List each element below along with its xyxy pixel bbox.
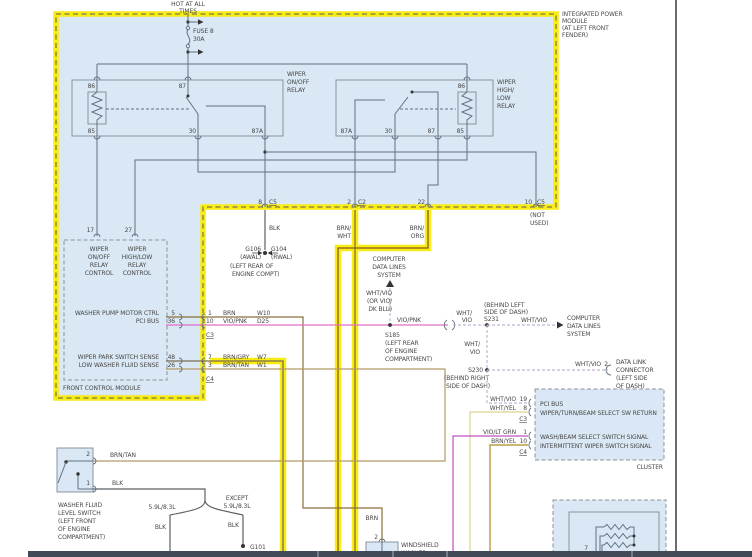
cdl-wire-2: (OR VIO/: [367, 298, 393, 305]
ground-g101: G101: [250, 544, 266, 551]
fcm-pin17: 17: [87, 227, 95, 234]
switch-name-1: WASHER FLUID: [58, 502, 102, 509]
hot-label: HOT AT ALL: [171, 1, 206, 8]
conn-c2-label: C2: [358, 199, 366, 206]
cluster-row-pin: 8: [523, 405, 527, 412]
ground-g106-loc: (AWAL): [240, 254, 261, 261]
cluster-conn-c3: C3: [519, 416, 527, 423]
fcm-highlow-3: RELAY: [128, 262, 147, 269]
wht-vio-right-label: WHT/VIO: [521, 317, 547, 324]
fcm-pin27: 27: [125, 227, 133, 234]
wiring-diagram: HOT AT ALL TIMES FUSE 8 30A INTEGRATED P…: [0, 0, 752, 557]
fcm-row-pin: 36: [168, 318, 176, 325]
pin2-label: 2: [347, 199, 351, 206]
ground-location-1: (LEFT REAR OF: [230, 263, 274, 270]
s185-loc-2: OF ENGINE: [385, 348, 417, 355]
fcm-onoff-2: ON/OFF: [88, 254, 111, 261]
relay2-pin87: 87: [428, 128, 436, 135]
brn-org-label-1: BRN/: [410, 225, 425, 232]
ground-g106: G106: [245, 246, 261, 253]
s231-loc-2: SIDE OF DASH): [484, 309, 528, 316]
relay1-pin85: 85: [88, 128, 96, 135]
dlc-pin: 2: [604, 361, 608, 368]
wht-vio-network: WHT/ VIO (BEHIND LEFT SIDE OF DASH) S231…: [444, 302, 654, 403]
splice-s185: S185: [385, 332, 400, 339]
cluster-row-wire: BRN/YEL: [491, 438, 517, 445]
switch-wire1: BLK: [112, 480, 124, 487]
not-used-2: USED): [530, 220, 548, 227]
relay2-pin85: 85: [457, 128, 465, 135]
relay1-pin30: 30: [189, 128, 197, 135]
switch-name-4: OF ENGINE: [58, 526, 90, 533]
fcm-row-pin: 48: [168, 354, 176, 361]
relay2-pin30: 30: [385, 128, 393, 135]
wht-vio-label-2: VIO: [462, 317, 473, 324]
cdl-right-2: DATA LINES: [567, 323, 601, 330]
fcm-row-circuit: W10: [257, 310, 271, 317]
fcm-onoff-4: CONTROL: [85, 270, 114, 277]
cluster-row-label: WIPER/TURN/BEAM SELECT SW RETURN: [540, 410, 657, 417]
ground-engine: G106 (AWAL) G104 (RWAL) (LEFT REAR OF EN…: [230, 210, 292, 278]
ground-location-2: ENGINE COMPT): [232, 271, 279, 278]
fcm-row-circuit: D25: [257, 318, 269, 325]
cluster-row-label: INTERMITTENT WIPER SWITCH SIGNAL: [540, 443, 652, 450]
s230-loc-1: (BEHIND RIGHT: [444, 375, 489, 382]
pin10-label: 10: [525, 199, 533, 206]
cdl-sys-3: SYSTEM: [377, 272, 400, 279]
not-used-1: (NOT: [530, 212, 545, 219]
ipm-name-1: INTEGRATED POWER: [562, 11, 623, 18]
pump-pin: 2: [374, 534, 378, 541]
cdl-right-3: SYSTEM: [567, 331, 590, 338]
relay1-pin87: 87: [179, 83, 187, 90]
s230-loc-2: SIDE OF DASH): [446, 383, 490, 390]
switch-pin1: 1: [86, 480, 90, 487]
fcm-highlow-1: WIPER: [128, 246, 147, 253]
relay1-pin87a: 87A: [252, 128, 264, 135]
fcm-row-label: WASHER PUMP MOTOR CTRL: [75, 310, 160, 317]
blk-right-label: BLK: [228, 522, 240, 529]
fcm-row-wire: VIO/PNK: [223, 318, 248, 325]
splice-s230: S230: [468, 367, 483, 374]
fcm-onoff-3: RELAY: [90, 262, 109, 269]
fcm-row-pin: 26: [168, 362, 176, 369]
fcm-row-connpin: 1: [208, 310, 212, 317]
cluster-row-wire: WHT/VIO: [490, 396, 516, 403]
pump-name-1: WINDSHIELD: [401, 542, 439, 549]
relay2-pin86: 86: [458, 83, 466, 90]
fcm-row-circuit: W7: [257, 354, 267, 361]
dlc-name-2: CONNECTOR: [616, 367, 654, 374]
wiring-diagram-page: HOT AT ALL TIMES FUSE 8 30A INTEGRATED P…: [0, 0, 752, 557]
s185-loc-3: COMPARTMENT): [385, 356, 432, 363]
cluster-row-label: WASH/BEAM SELECT SWITCH SIGNAL: [540, 434, 649, 441]
cluster-row-wire: VIO/LT GRN: [483, 429, 516, 436]
relay1-pin86: 86: [88, 83, 96, 90]
fcm-row-label: WIPER PARK SWITCH SENSE: [78, 354, 160, 361]
blk-wire-label: BLK: [269, 225, 281, 232]
ipm-name-2: MODULE: [562, 18, 588, 25]
fcm-row-label: PCI BUS: [136, 318, 159, 325]
ipm-name-3: (AT LEFT FRONT: [562, 25, 609, 32]
conn-c5b-label: C5: [537, 199, 545, 206]
fcm-conn-c4: C4: [206, 376, 214, 383]
vio-pnk-label: VIO/PNK: [397, 317, 422, 324]
washer-fluid-level-switch: 2 BRN/TAN 1 BLK WASHER FLUID LEVEL SWITC…: [57, 448, 205, 541]
ipm-name: INTEGRATED POWER MODULE (AT LEFT FRONT F…: [562, 11, 623, 39]
switch-wire2: BRN/TAN: [110, 452, 136, 459]
branch-left-label: 5.9L/8.3L: [149, 504, 177, 511]
switch-name-5: COMPARTMENT): [58, 534, 105, 541]
fcm-row-wire: BRN/GRY: [223, 354, 250, 361]
pin22-label: 22: [418, 199, 426, 206]
relay2-label-2: HIGH/: [497, 87, 515, 94]
dlc-name-1: DATA LINK: [616, 359, 647, 366]
fcm-row-wire: BRN/TAN: [223, 362, 249, 369]
switch-name-3: (LEFT FRONT: [58, 518, 96, 525]
fcm-row-connpin: 10: [206, 318, 214, 325]
fcm-row-wire: BRN: [223, 310, 235, 317]
fuse-label: FUSE 8: [193, 28, 214, 35]
fcm-row-circuit: W1: [257, 362, 267, 369]
cluster-name: CLUSTER: [637, 464, 663, 471]
conn-c5-label: C5: [269, 199, 277, 206]
ground-split: 5.9L/8.3L EXCEPT 5.9L/8.3L BLK BLK G101: [149, 495, 266, 551]
fcm-row-pin: 5: [171, 310, 175, 317]
brn-org-label-2: ORG: [411, 233, 425, 240]
cluster-row-pin: 10: [520, 438, 528, 445]
cdl-sys-2: DATA LINES: [372, 264, 406, 271]
relay1-label-3: RELAY: [287, 87, 306, 94]
branch-right-label-1: EXCEPT: [226, 495, 249, 502]
s230-wire-2: VIO: [470, 349, 481, 356]
cluster-row-pin: 19: [520, 396, 528, 403]
fcm-conn-c3: C3: [206, 332, 214, 339]
highlight-region: [56, 14, 556, 398]
brn-wht-label-1: BRN/: [337, 225, 352, 232]
cdl-sys-1: COMPUTER: [373, 256, 406, 263]
s185-loc-1: (LEFT REAR: [385, 340, 419, 347]
ipm-name-4: FENDER): [562, 32, 588, 39]
blk-left-label: BLK: [155, 524, 167, 531]
fcm-name: FRONT CONTROL MODULE: [63, 385, 141, 392]
s231-loc-1: (BEHIND LEFT: [484, 302, 525, 309]
cdl-wire-1: WHT/VIO: [366, 290, 392, 297]
hot-label-2: TIMES: [178, 8, 197, 15]
cluster-conn-c4: C4: [519, 449, 527, 456]
fcm-row-connpin: 3: [208, 362, 212, 369]
fuse-rating: 30A: [193, 36, 205, 43]
switch-pin2: 2: [86, 451, 90, 458]
windshield-washer-pump: BRN 2 WINDSHIELD WASHER: [366, 515, 440, 557]
fcm-highlow-2: HIGH/LOW: [122, 254, 153, 261]
data-lines-engine: COMPUTER DATA LINES SYSTEM WHT/VIO (OR V…: [366, 256, 455, 363]
switch-name-2: LEVEL SWITCH: [58, 510, 101, 517]
pump-wire-label: BRN: [366, 515, 378, 522]
cluster-row-wire: WHT/YEL: [490, 405, 517, 412]
dlc-wire-label: WHT/VIO: [575, 361, 601, 368]
wiper-switch-resistor-block: 7: [553, 500, 666, 557]
ground-g104-loc: (RWAL): [271, 254, 292, 261]
relay2-label-4: RELAY: [497, 103, 516, 110]
ground-g104: G104: [271, 246, 287, 253]
wiper-switch-pin7: 7: [584, 545, 588, 552]
pin8-label: 8: [258, 199, 262, 206]
fcm-row-label: LOW WASHER FLUID SENSE: [79, 362, 160, 369]
bottom-window-bar[interactable]: [28, 551, 752, 557]
branch-right-label-2: 5.9L/8.3L: [224, 503, 252, 510]
relay2-label-1: WIPER: [497, 79, 516, 86]
cdl-wire-3: DK BLU): [368, 306, 392, 313]
fcm-onoff-1: WIPER: [90, 246, 109, 253]
relay2-label-3: LOW: [497, 95, 511, 102]
dlc-name-3: (LEFT SIDE: [616, 375, 648, 382]
cluster-row-label: PCI BUS: [540, 401, 563, 408]
brn-wht-label-2: WHT: [337, 233, 351, 240]
cdl-right-1: COMPUTER: [567, 315, 600, 322]
relay1-label-2: ON/OFF: [287, 79, 310, 86]
relay2-pin87a: 87A: [341, 128, 353, 135]
fcm-row-connpin: 7: [208, 354, 212, 361]
splice-s231: S231: [484, 316, 499, 323]
s230-wire-1: WHT/: [464, 341, 481, 348]
relay1-label-1: WIPER: [287, 71, 306, 78]
cluster-row-pin: 1: [523, 429, 527, 436]
fcm-highlow-4: CONTROL: [123, 270, 152, 277]
wht-vio-label-1: WHT/: [456, 310, 473, 317]
